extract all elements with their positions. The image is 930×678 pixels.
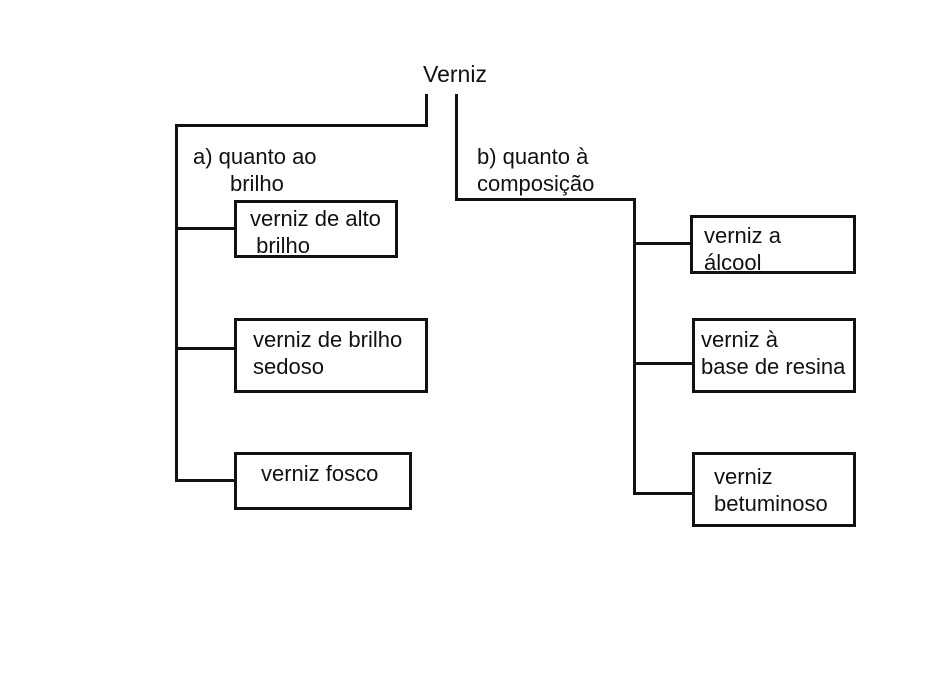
- connector-branch-b-stub-2: [636, 362, 692, 365]
- root-node-label: Verniz: [400, 61, 510, 88]
- branch-a-label: a) quanto ao brilho: [193, 143, 317, 197]
- connector-root-drop-branch-b: [455, 94, 458, 201]
- branch-b-label-line2: composição: [477, 170, 594, 197]
- connector-branch-a-stub-2: [178, 347, 234, 350]
- node-box-verniz-fosco: verniz fosco: [234, 452, 412, 510]
- node-box-verniz-betuminoso: verniz betuminoso: [692, 452, 856, 527]
- node-box-verniz-brilho-sedoso: verniz de brilho sedoso: [234, 318, 428, 393]
- connector-branch-a-stub-3: [178, 479, 234, 482]
- branch-a-label-line2: brilho: [230, 170, 317, 197]
- connector-branch-b-horizontal: [455, 198, 636, 201]
- connector-branch-b-stub-1: [636, 242, 692, 245]
- branch-b-label-line1: b) quanto à: [477, 143, 594, 170]
- connector-branch-a-trunk: [175, 124, 178, 482]
- node-box-verniz-a-alcool: verniz a álcool: [690, 215, 856, 274]
- connector-branch-b-stub-3: [636, 492, 692, 495]
- connector-branch-a-horizontal: [175, 124, 428, 127]
- node-box-verniz-base-resina: verniz à base de resina: [692, 318, 856, 393]
- branch-a-label-line1: a) quanto ao: [193, 143, 317, 170]
- varnish-classification-diagram: Verniz a) quanto ao brilho b) quanto à c…: [0, 0, 930, 678]
- node-box-verniz-alto-brilho: verniz de alto brilho: [234, 200, 398, 258]
- connector-root-drop-branch-a: [425, 94, 428, 127]
- branch-b-label: b) quanto à composição: [477, 143, 594, 197]
- connector-branch-a-stub-1: [178, 227, 234, 230]
